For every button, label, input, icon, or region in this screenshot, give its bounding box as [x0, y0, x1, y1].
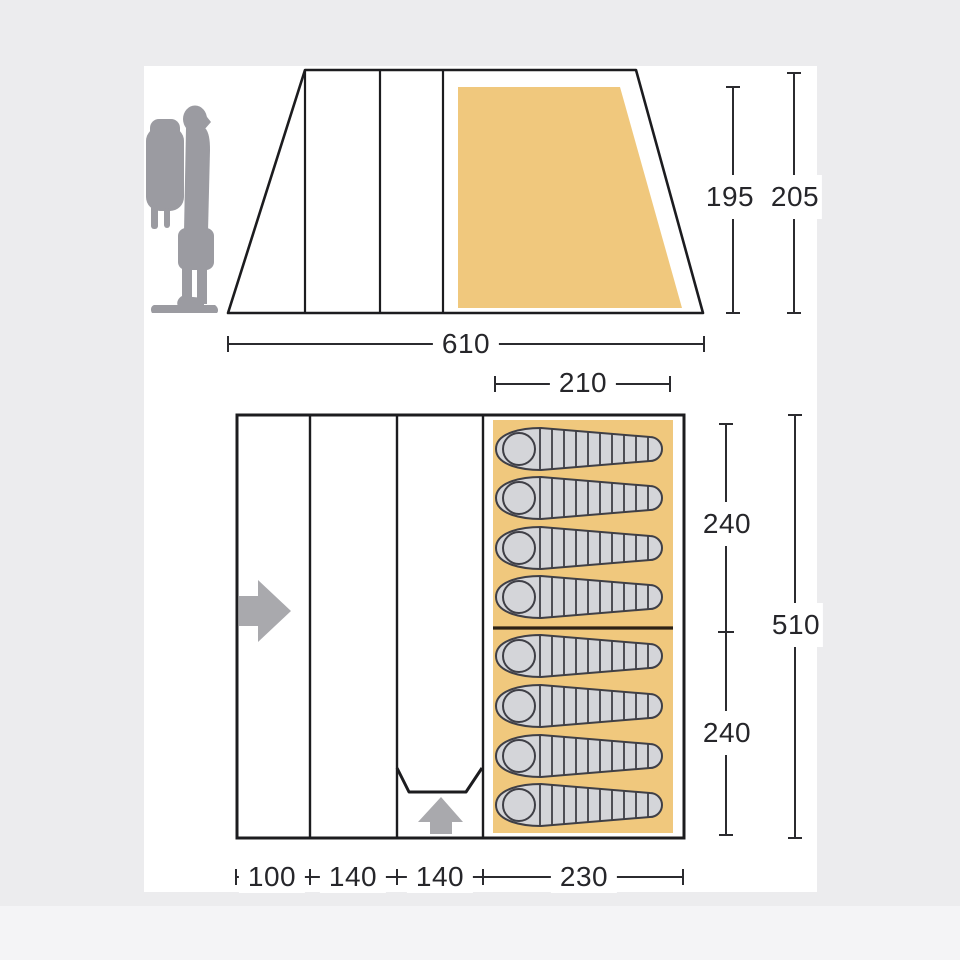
hiker-silhouette-icon	[146, 106, 218, 314]
dim-label-bedroom-depth-lower: 240	[700, 711, 754, 755]
tent-dimension-diagram: 195 205 610 210 240 510 240 100 140 140 …	[0, 0, 960, 960]
dim-label-total-length: 610	[433, 328, 499, 360]
dim-label-inner-height: 195	[703, 175, 757, 219]
tent-side-view	[228, 70, 703, 313]
dim-label-bedroom-depth-upper: 240	[700, 502, 754, 546]
dim-label-living-length-b: 140	[407, 861, 473, 893]
dim-label-porch-length: 100	[239, 861, 305, 893]
dim-label-total-depth: 510	[769, 603, 823, 647]
tent-floor-plan	[237, 415, 684, 838]
dim-label-bedroom-length-top: 210	[550, 367, 616, 399]
dim-line-bedroom-depths	[718, 424, 734, 835]
dim-label-total-height: 205	[768, 175, 822, 219]
dim-label-bedroom-length: 230	[551, 861, 617, 893]
diagram-drawing	[0, 0, 960, 960]
dim-label-living-length-a: 140	[320, 861, 386, 893]
